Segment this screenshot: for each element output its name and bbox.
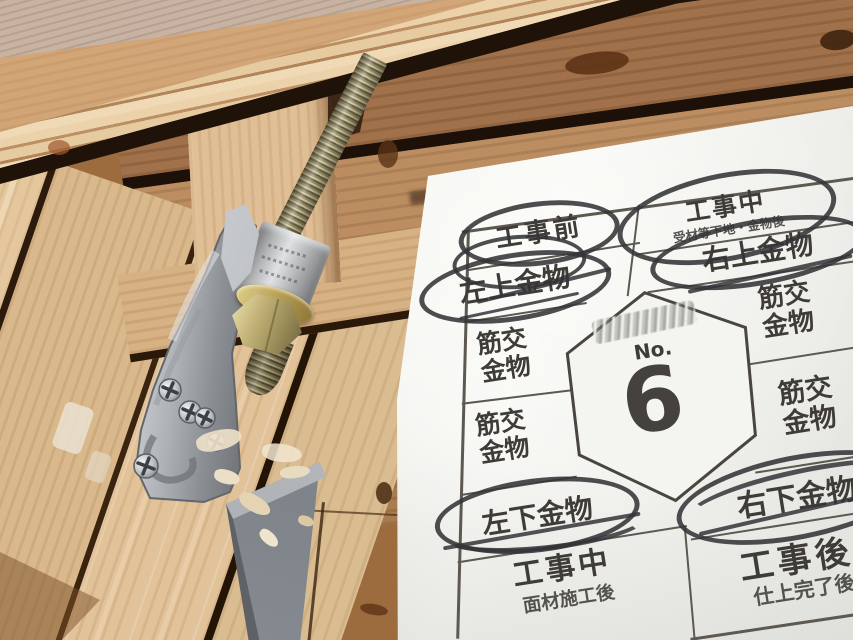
phillips-screw	[195, 408, 215, 428]
cell-brace-left-2: 筋交金物	[470, 405, 534, 469]
stamped-marks	[261, 255, 306, 271]
cell-brace-right-1: 筋交金物	[753, 278, 819, 345]
cell-brace-left-1: 筋交金物	[472, 324, 536, 388]
phillips-screw	[134, 454, 158, 478]
construction-photo: No. 6 工事前 工事中 受材等下地・金物後 左上金物 右上金物 筋交金物 筋…	[0, 0, 853, 640]
cell-brace-right-2: 筋交金物	[773, 372, 842, 441]
phillips-screw	[159, 379, 181, 401]
wood-knot	[359, 602, 388, 618]
nut-facet-line	[264, 299, 279, 352]
stamped-marks	[268, 244, 309, 259]
wood-knot	[378, 140, 398, 168]
wood-knot	[376, 482, 392, 504]
stamped-marks	[259, 269, 298, 284]
wood-knot	[48, 140, 70, 155]
